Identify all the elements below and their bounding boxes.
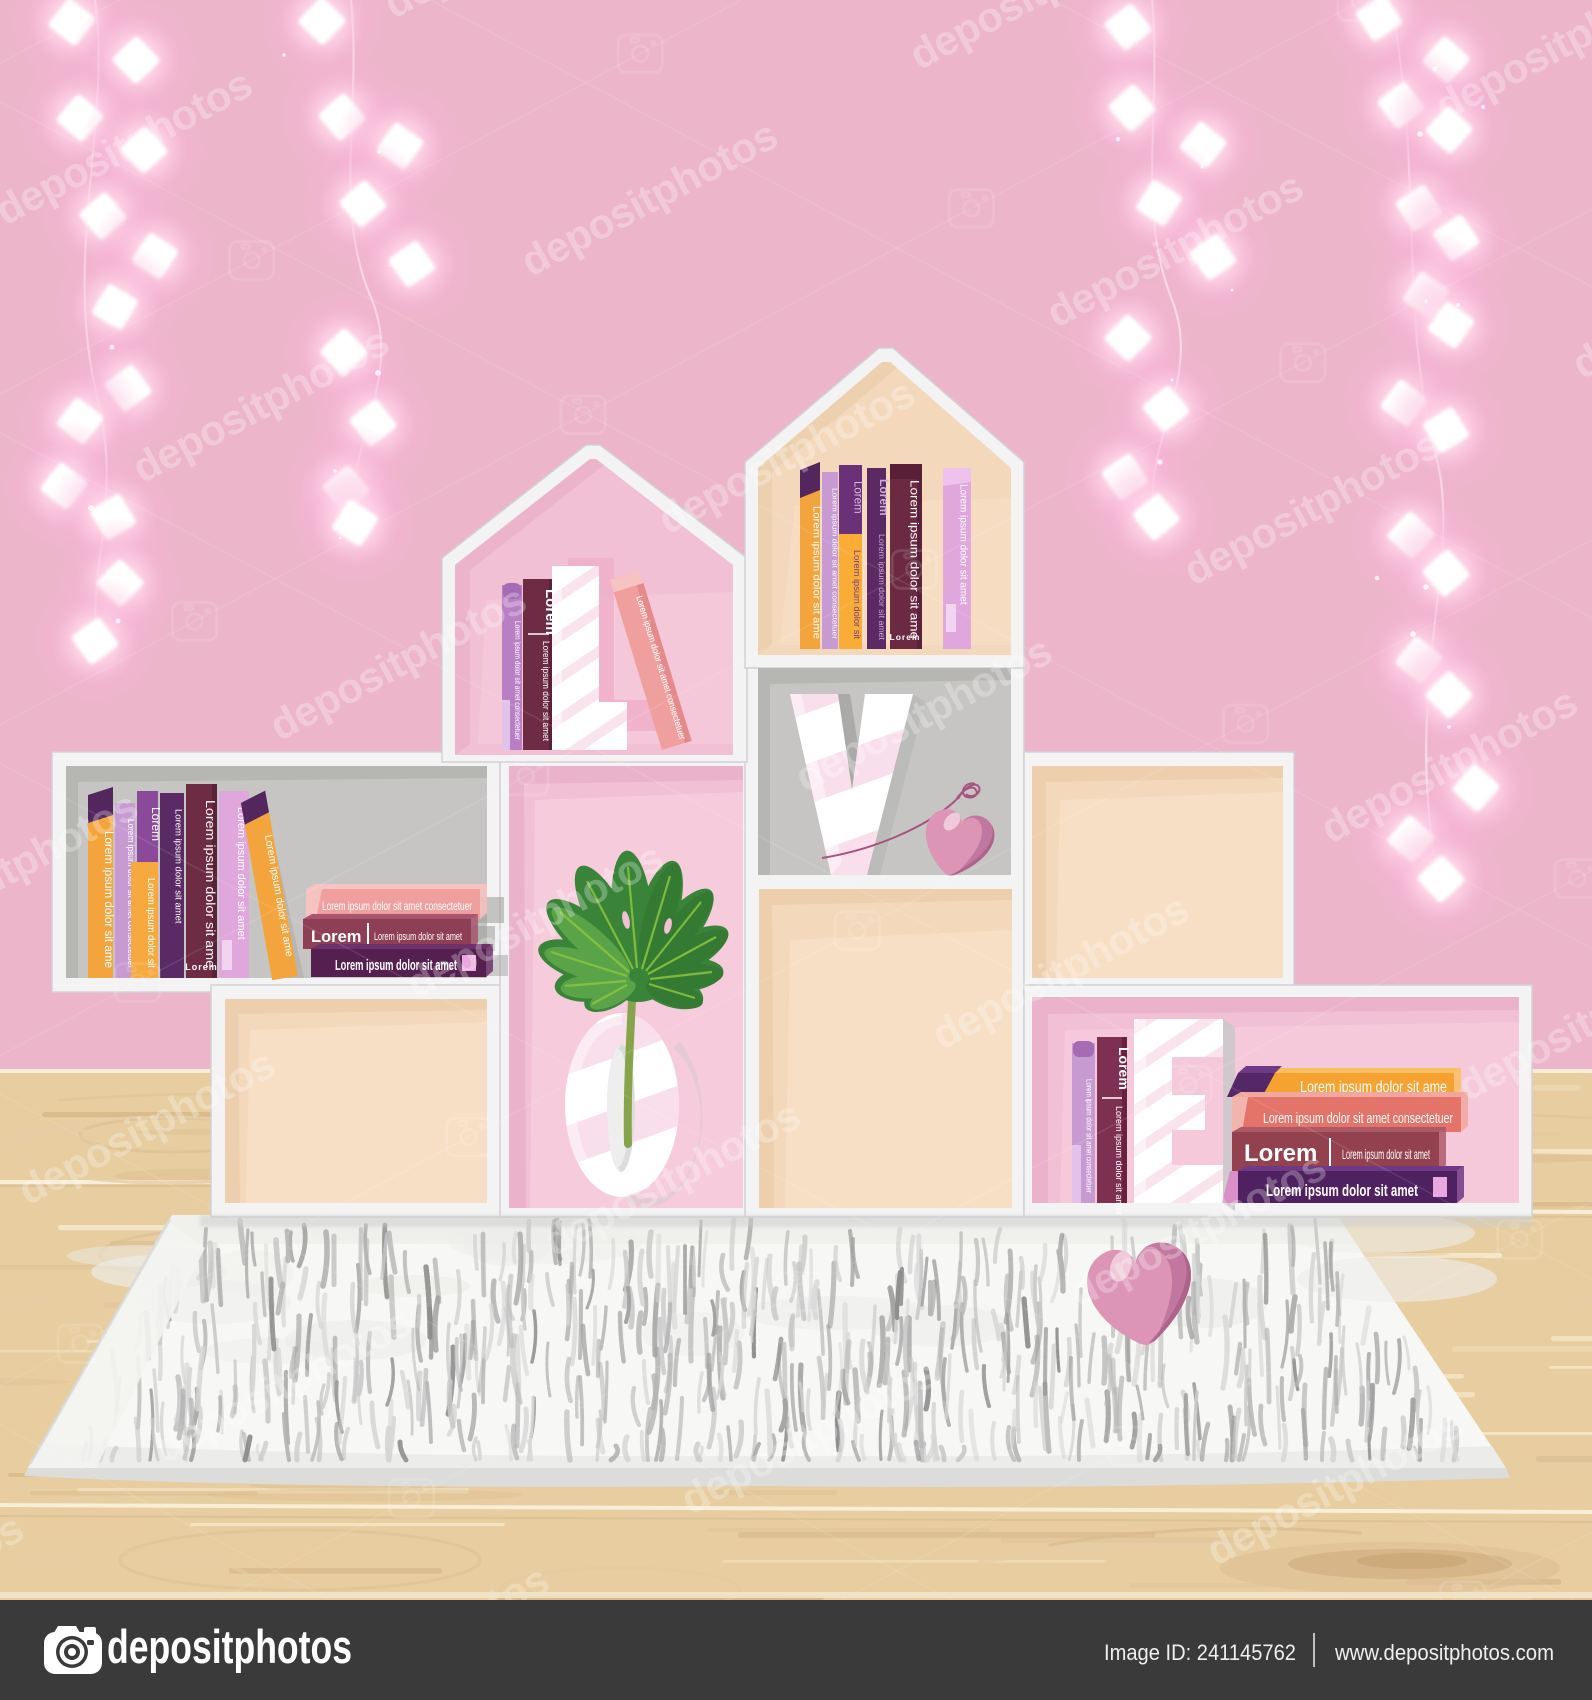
svg-text:Image ID: 241145762: Image ID: 241145762 <box>1104 1640 1296 1665</box>
svg-text:Lorem ipsum dolor sit amet: Lorem ipsum dolor sit amet <box>540 641 551 741</box>
svg-text:Lorem ipsum dolor sit amet: Lorem ipsum dolor sit amet <box>172 809 183 924</box>
svg-text:www.depositphotos.com: www.depositphotos.com <box>1334 1640 1554 1665</box>
svg-text:Lorem: Lorem <box>311 928 361 946</box>
svg-text:Lorem ipsum dolor sit amet con: Lorem ipsum dolor sit amet consectetuer <box>322 899 472 913</box>
svg-text:Lorem ipsum dolor sit ame: Lorem ipsum dolor sit ame <box>102 831 116 968</box>
svg-text:Lorem ipsum dolor sit amet: Lorem ipsum dolor sit amet <box>958 484 969 605</box>
svg-text:Lorem ipsum dolor sit: Lorem ipsum dolor sit <box>851 550 862 639</box>
svg-text:Lorem: Lorem <box>852 481 864 514</box>
svg-text:Lorem: Lorem <box>185 962 218 972</box>
svg-text:Lorem ipsum dolor sit amet con: Lorem ipsum dolor sit amet consectetuer <box>513 621 523 740</box>
svg-text:Lorem ipsum dolor sit: Lorem ipsum dolor sit <box>145 878 156 968</box>
svg-text:Lorem: Lorem <box>1116 1047 1132 1090</box>
svg-text:depositphotos: depositphotos <box>107 1620 352 1673</box>
svg-text:Lorem: Lorem <box>877 479 891 516</box>
svg-text:Lorem ipsum dolor sit ame: Lorem ipsum dolor sit ame <box>907 480 921 639</box>
svg-text:Lorem: Lorem <box>890 632 921 642</box>
svg-text:Lorem ipsum dolor sit amet con: Lorem ipsum dolor sit amet consectetuer <box>831 488 840 640</box>
